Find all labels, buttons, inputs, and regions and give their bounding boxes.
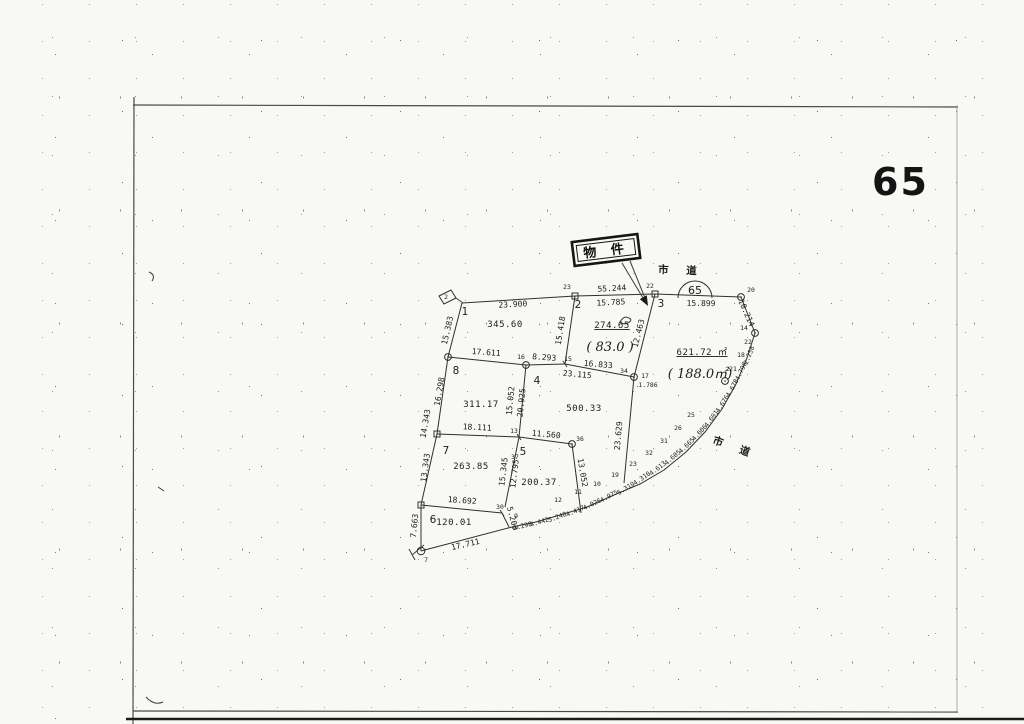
boundary-point-dot <box>571 443 573 445</box>
point-id-label: 32 <box>645 449 653 457</box>
measurement-label: 16.298 <box>433 376 447 406</box>
lot-number-label: 7 <box>443 445 450 457</box>
point-id-label: 34 <box>620 367 628 375</box>
point-id-label: 22 <box>646 282 654 290</box>
measurement-label: 15.052 <box>505 386 517 416</box>
lot-number-label: 4 <box>534 375 541 387</box>
lot-number-label: 3 <box>658 298 665 310</box>
measurement-label: 11.560 <box>531 429 561 441</box>
curve-segment-label: 1.786 <box>638 381 657 389</box>
measurement-label: 8.293 <box>532 352 557 363</box>
scanned-survey-sheet: 65 23.90055.24415.78515.89910.21415.3831… <box>0 0 1024 724</box>
point-id-label: 23 <box>563 283 571 291</box>
measurement-label: 18.692 <box>447 495 477 506</box>
point-id-label: 30 <box>496 503 504 511</box>
boundary-edge <box>437 434 519 437</box>
boundary-stake-tail <box>456 298 463 303</box>
area-label: 200.37 <box>521 478 557 488</box>
road-label-top: 市 道 <box>658 263 704 278</box>
boundary-edge <box>448 357 526 365</box>
measurement-label: 15.418 <box>554 315 567 345</box>
boundary-point-dot <box>447 356 449 358</box>
area-label: 263.85 <box>453 462 489 472</box>
point-id-label: 9 <box>514 512 518 520</box>
point-id-label: 26 <box>674 424 682 432</box>
area-label-underlined: 274.65 <box>594 321 630 331</box>
measurement-label: 17.611 <box>471 347 501 358</box>
point-id-label: 11 <box>574 488 582 496</box>
point-id-label: 20 <box>747 286 755 294</box>
area-label: 311.17 <box>463 400 499 410</box>
point-id-label: 23 <box>629 460 637 468</box>
point-id-label: 10 <box>593 480 601 488</box>
point-id-label: 22 <box>744 338 752 346</box>
measurement-label: 17.711 <box>450 537 480 552</box>
point-id-label: 25 <box>687 411 695 419</box>
measurement-label: 23.115 <box>562 369 592 381</box>
point-id-label: 37 <box>511 453 519 461</box>
lot-number-label: 8 <box>453 365 460 377</box>
handwritten-area-label: ( 188.0㎡) <box>668 366 733 382</box>
arrowhead <box>640 295 648 306</box>
lot-number-label: 1 <box>462 306 469 318</box>
measurement-label: 15.899 <box>687 299 716 309</box>
boundary-point-dot <box>525 364 527 366</box>
area-label-underlined: 621.72 ㎡ <box>677 347 728 358</box>
area-label: 500.33 <box>566 404 602 414</box>
point-id-label: 2 <box>444 293 448 301</box>
road-label-curve: 市 道 <box>711 434 758 462</box>
point-id-label: 7 <box>424 556 428 564</box>
measurement-label: 15.383 <box>440 315 455 345</box>
measurement-label: 55.244 <box>597 283 627 294</box>
area-label: 345.60 <box>487 320 523 330</box>
measurement-label: 14.343 <box>419 408 433 438</box>
point-id-label: 17 <box>641 372 649 380</box>
point-id-label: 13 <box>510 427 518 435</box>
point-id-label: 18 <box>737 351 745 359</box>
parcel-map: 23.90055.24415.78515.89910.21415.38316.2… <box>409 282 759 564</box>
boundary-edge <box>421 505 502 513</box>
lot-number-label: 2 <box>575 299 582 311</box>
point-id-label: 31 <box>660 437 668 445</box>
boundary-point-dot <box>740 296 742 298</box>
point-id-label: 19 <box>611 471 619 479</box>
survey-map-svg: 23.90055.24415.78515.89910.21415.38316.2… <box>0 0 1024 724</box>
measurement-label: 23.629 <box>613 421 625 451</box>
boundary-point-dot <box>633 376 635 378</box>
boundary-edge <box>526 364 565 365</box>
measurement-label: 23.900 <box>498 299 528 310</box>
point-id-label: 16 <box>517 353 525 361</box>
handwritten-area-label: ( 83.0 ) <box>586 340 633 355</box>
measurement-label: 15.345 <box>497 457 509 487</box>
measurement-label: 12.795 <box>508 459 520 489</box>
point-id-label: 36 <box>576 435 584 443</box>
measurement-label: 18.111 <box>462 422 492 433</box>
measurement-label: 13.343 <box>419 453 432 483</box>
lot-number-label: 5 <box>520 446 527 458</box>
boundary-point-dot <box>754 332 756 334</box>
point-id-label: 14 <box>740 324 748 332</box>
boundary-stake-marks <box>409 545 424 560</box>
point-id-label: 12 <box>554 496 562 504</box>
boundary-edge <box>565 296 575 364</box>
area-label: 120.01 <box>436 518 472 528</box>
point-id-label: 15 <box>564 355 572 363</box>
measurement-label: 15.785 <box>596 297 626 308</box>
route-badge-number: 65 <box>688 284 702 297</box>
measurement-label: 7.663 <box>409 513 420 538</box>
measurement-label: 20.925 <box>516 388 528 418</box>
